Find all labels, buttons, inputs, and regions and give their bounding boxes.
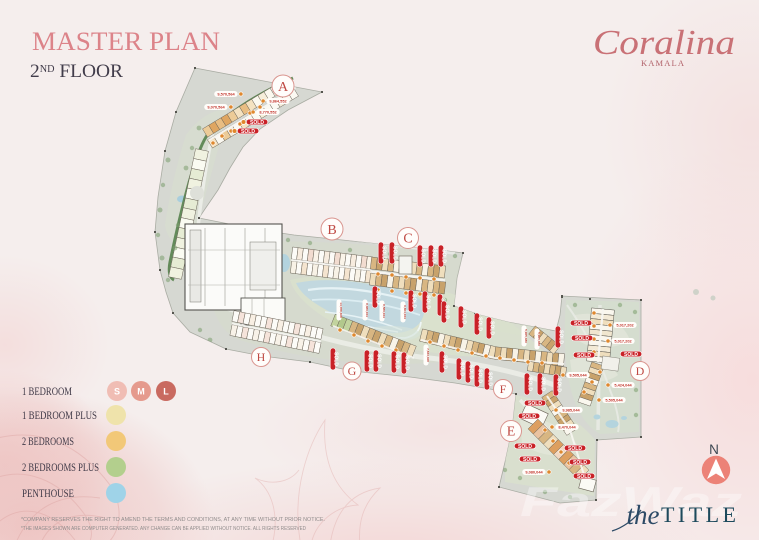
svg-text:8,770,552: 8,770,552 bbox=[259, 110, 277, 115]
svg-text:SOLD: SOLD bbox=[477, 317, 483, 331]
svg-text:S: S bbox=[114, 387, 120, 397]
svg-text:SOLD: SOLD bbox=[518, 444, 532, 450]
svg-text:G: G bbox=[348, 364, 357, 378]
svg-text:2 BEDROOMS PLUS: 2 BEDROOMS PLUS bbox=[22, 462, 99, 474]
svg-text:SOLD: SOLD bbox=[425, 295, 431, 309]
svg-text:7,833,308: 7,833,308 bbox=[426, 348, 430, 362]
svg-text:SOLD: SOLD bbox=[333, 352, 339, 366]
svg-text:5,424,044: 5,424,044 bbox=[614, 383, 632, 388]
svg-text:SOLD: SOLD bbox=[367, 354, 373, 368]
svg-text:5,965,380: 5,965,380 bbox=[524, 329, 528, 343]
svg-text:N: N bbox=[709, 442, 719, 457]
svg-text:SOLD: SOLD bbox=[556, 378, 562, 392]
svg-text:SOLD: SOLD bbox=[522, 414, 536, 420]
svg-text:SOLD: SOLD bbox=[489, 321, 495, 335]
svg-text:8,386,044: 8,386,044 bbox=[365, 303, 369, 317]
svg-text:5,965,380: 5,965,380 bbox=[537, 332, 541, 346]
svg-text:*COMPANY RESERVES THE RIGHT TO: *COMPANY RESERVES THE RIGHT TO AMEND THE… bbox=[21, 517, 325, 523]
svg-text:9,505,044: 9,505,044 bbox=[569, 373, 587, 378]
svg-text:SOLD: SOLD bbox=[431, 249, 437, 263]
svg-text:9,570,564: 9,570,564 bbox=[217, 92, 235, 97]
svg-text:9,080,044: 9,080,044 bbox=[525, 470, 543, 475]
svg-text:14,788,308: 14,788,308 bbox=[339, 302, 343, 318]
svg-text:SOLD: SOLD bbox=[575, 336, 589, 342]
svg-text:SOLD: SOLD bbox=[540, 377, 546, 391]
svg-text:D: D bbox=[636, 364, 645, 378]
svg-text:1 BEDROOM PLUS: 1 BEDROOM PLUS bbox=[22, 410, 97, 422]
svg-text:SOLD: SOLD bbox=[574, 321, 588, 327]
svg-text:SOLD: SOLD bbox=[573, 460, 587, 466]
svg-text:SOLD: SOLD bbox=[527, 377, 533, 391]
svg-text:9,864,552: 9,864,552 bbox=[269, 99, 287, 104]
svg-text:SOLD: SOLD bbox=[477, 369, 483, 383]
svg-text:SOLD: SOLD bbox=[250, 120, 264, 126]
svg-text:SOLD: SOLD bbox=[411, 294, 417, 308]
svg-text:M: M bbox=[137, 387, 145, 397]
svg-text:SOLD: SOLD bbox=[558, 330, 564, 344]
svg-text:B: B bbox=[327, 223, 336, 238]
svg-text:SOLD: SOLD bbox=[381, 246, 387, 260]
svg-text:9,985,044: 9,985,044 bbox=[562, 408, 580, 413]
svg-text:SOLD: SOLD bbox=[461, 310, 467, 324]
svg-text:C: C bbox=[403, 232, 412, 247]
svg-text:PENTHOUSE: PENTHOUSE bbox=[22, 488, 74, 500]
svg-text:E: E bbox=[507, 425, 516, 440]
svg-text:SOLD: SOLD bbox=[420, 249, 426, 263]
svg-text:MASTER PLAN: MASTER PLAN bbox=[32, 27, 220, 56]
svg-text:SOLD: SOLD bbox=[375, 290, 381, 304]
svg-text:SOLD: SOLD bbox=[487, 372, 493, 386]
svg-text:SOLD: SOLD bbox=[528, 401, 542, 407]
svg-text:TITLE: TITLE bbox=[661, 502, 736, 527]
svg-text:5,505,044: 5,505,044 bbox=[605, 398, 623, 403]
svg-text:5,017,202: 5,017,202 bbox=[614, 339, 632, 344]
svg-text:SOLD: SOLD bbox=[392, 246, 398, 260]
svg-text:SOLD: SOLD bbox=[241, 129, 255, 135]
svg-text:SOLD: SOLD bbox=[394, 355, 400, 369]
svg-text:KAMALA: KAMALA bbox=[641, 58, 687, 68]
svg-text:8,586,044: 8,586,044 bbox=[382, 304, 386, 318]
svg-text:the: the bbox=[627, 500, 660, 530]
svg-text:9,604,044: 9,604,044 bbox=[403, 305, 407, 319]
svg-text:SOLD: SOLD bbox=[459, 362, 465, 376]
svg-text:H: H bbox=[257, 350, 266, 364]
svg-text:SOLD: SOLD bbox=[442, 355, 448, 369]
svg-text:SOLD: SOLD bbox=[444, 305, 450, 319]
svg-text:SOLD: SOLD bbox=[624, 352, 638, 358]
svg-text:9,070,564: 9,070,564 bbox=[207, 105, 225, 110]
svg-text:SOLD: SOLD bbox=[441, 249, 447, 263]
svg-text:2 BEDROOMS: 2 BEDROOMS bbox=[22, 436, 74, 448]
svg-text:Coralina: Coralina bbox=[593, 23, 735, 62]
svg-text:*THE IMAGES SHOWN ARE COMPUTER: *THE IMAGES SHOWN ARE COMPUTER GENERATED… bbox=[21, 526, 306, 532]
svg-text:SOLD: SOLD bbox=[376, 354, 382, 368]
svg-text:A: A bbox=[278, 80, 289, 95]
svg-text:SOLD: SOLD bbox=[468, 365, 474, 379]
svg-text:F: F bbox=[500, 382, 507, 396]
svg-text:5,017,202: 5,017,202 bbox=[616, 323, 634, 328]
svg-text:1 BEDROOM: 1 BEDROOM bbox=[22, 386, 72, 398]
svg-text:L: L bbox=[163, 387, 169, 397]
svg-text:SOLD: SOLD bbox=[577, 353, 591, 359]
svg-text:8,470,044: 8,470,044 bbox=[558, 425, 576, 430]
svg-text:SOLD: SOLD bbox=[523, 457, 537, 463]
svg-text:SOLD: SOLD bbox=[404, 356, 410, 370]
svg-text:SOLD: SOLD bbox=[568, 446, 582, 452]
